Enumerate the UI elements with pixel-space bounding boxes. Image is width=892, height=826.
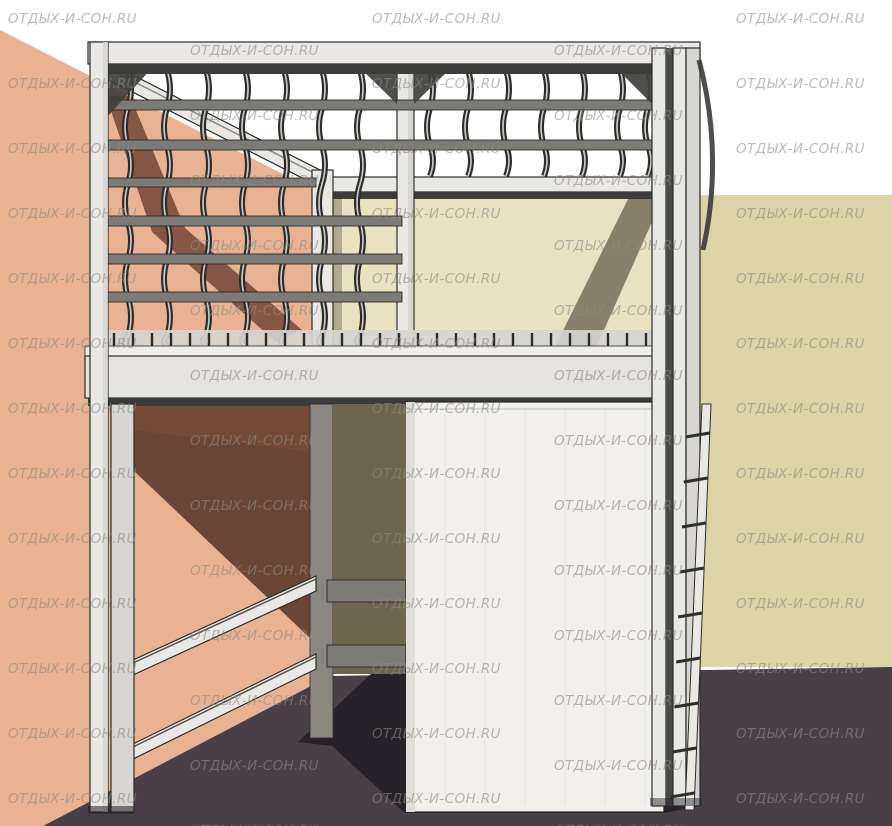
watermark-tile: ОТДЫХ-И-СОН.RU bbox=[372, 401, 501, 417]
watermark-tile: ОТДЫХ-И-СОН.RU bbox=[190, 368, 319, 384]
watermark-tile: ОТДЫХ-И-СОН.RU bbox=[736, 206, 865, 222]
watermark-tile: ОТДЫХ-И-СОН.RU bbox=[736, 76, 865, 92]
watermark-tile: ОТДЫХ-И-СОН.RU bbox=[372, 726, 501, 742]
watermark-tile: ОТДЫХ-И-СОН.RU bbox=[736, 336, 865, 352]
watermark-tile: ОТДЫХ-И-СОН.RU bbox=[190, 758, 319, 774]
watermark-tile: ОТДЫХ-И-СОН.RU bbox=[554, 43, 683, 59]
watermark-tile: ОТДЫХ-И-СОН.RU bbox=[190, 238, 319, 254]
watermark-tile: ОТДЫХ-И-СОН.RU bbox=[554, 238, 683, 254]
watermark-tile: ОТДЫХ-И-СОН.RU bbox=[372, 141, 501, 157]
watermark-tile: ОТДЫХ-И-СОН.RU bbox=[554, 563, 683, 579]
watermark-tile: ОТДЫХ-И-СОН.RU bbox=[190, 173, 319, 189]
watermark-tile: ОТДЫХ-И-СОН.RU bbox=[190, 43, 319, 59]
watermark-tile: ОТДЫХ-И-СОН.RU bbox=[736, 596, 865, 612]
render-canvas: ОТДЫХ-И-СОН.RUОТДЫХ-И-СОН.RUОТДЫХ-И-СОН.… bbox=[0, 0, 892, 826]
watermark-tile: ОТДЫХ-И-СОН.RU bbox=[8, 76, 137, 92]
watermark-tile: ОТДЫХ-И-СОН.RU bbox=[554, 693, 683, 709]
watermark-tile: ОТДЫХ-И-СОН.RU bbox=[736, 531, 865, 547]
watermark-tile: ОТДЫХ-И-СОН.RU bbox=[554, 758, 683, 774]
watermark-tile: ОТДЫХ-И-СОН.RU bbox=[554, 628, 683, 644]
watermark-tile: ОТДЫХ-И-СОН.RU bbox=[736, 726, 865, 742]
watermark-tile: ОТДЫХ-И-СОН.RU bbox=[8, 596, 137, 612]
watermark-tile: ОТДЫХ-И-СОН.RU bbox=[554, 173, 683, 189]
watermark-tile: ОТДЫХ-И-СОН.RU bbox=[190, 498, 319, 514]
watermark-tile: ОТДЫХ-И-СОН.RU bbox=[554, 368, 683, 384]
watermark-tile: ОТДЫХ-И-СОН.RU bbox=[372, 336, 501, 352]
watermark-tile: ОТДЫХ-И-СОН.RU bbox=[554, 433, 683, 449]
watermark-tile: ОТДЫХ-И-СОН.RU bbox=[190, 628, 319, 644]
product-render: ОТДЫХ-И-СОН.RU ОТДЫХ-И-СОН.RUОТДЫХ-И-СОН… bbox=[0, 0, 892, 826]
watermark-tile: ОТДЫХ-И-СОН.RU bbox=[8, 336, 137, 352]
watermark-tile: ОТДЫХ-И-СОН.RU bbox=[190, 563, 319, 579]
watermark-tile: ОТДЫХ-И-СОН.RU bbox=[736, 661, 865, 677]
watermark-tile: ОТДЫХ-И-СОН.RU bbox=[8, 11, 137, 27]
watermark-tile: ОТДЫХ-И-СОН.RU bbox=[190, 303, 319, 319]
watermark-tile: ОТДЫХ-И-СОН.RU bbox=[372, 661, 501, 677]
watermark-tile: ОТДЫХ-И-СОН.RU bbox=[372, 791, 501, 807]
watermark-tile: ОТДЫХ-И-СОН.RU bbox=[554, 108, 683, 124]
watermark-tile: ОТДЫХ-И-СОН.RU bbox=[8, 466, 137, 482]
watermark-tile: ОТДЫХ-И-СОН.RU bbox=[372, 531, 501, 547]
watermark-tile: ОТДЫХ-И-СОН.RU bbox=[736, 791, 865, 807]
watermark-tile: ОТДЫХ-И-СОН.RU bbox=[736, 466, 865, 482]
watermark-tile: ОТДЫХ-И-СОН.RU bbox=[372, 466, 501, 482]
watermark-tile: ОТДЫХ-И-СОН.RU bbox=[372, 596, 501, 612]
watermark-tile: ОТДЫХ-И-СОН.RU bbox=[190, 693, 319, 709]
watermark-tile: ОТДЫХ-И-СОН.RU bbox=[8, 401, 137, 417]
watermark-tile: ОТДЫХ-И-СОН.RU bbox=[736, 11, 865, 27]
watermark-tile: ОТДЫХ-И-СОН.RU bbox=[8, 661, 137, 677]
watermark-tile: ОТДЫХ-И-СОН.RU bbox=[554, 498, 683, 514]
watermark-tile: ОТДЫХ-И-СОН.RU bbox=[372, 271, 501, 287]
watermark-tile: ОТДЫХ-И-СОН.RU bbox=[8, 271, 137, 287]
watermark-tile: ОТДЫХ-И-СОН.RU bbox=[736, 271, 865, 287]
watermark-tile: ОТДЫХ-И-СОН.RU bbox=[190, 433, 319, 449]
watermark-tile: ОТДЫХ-И-СОН.RU bbox=[372, 206, 501, 222]
watermark-tile: ОТДЫХ-И-СОН.RU bbox=[8, 726, 137, 742]
watermark-tile: ОТДЫХ-И-СОН.RU bbox=[8, 791, 137, 807]
watermark-tile: ОТДЫХ-И-СОН.RU bbox=[8, 531, 137, 547]
watermark-tile: ОТДЫХ-И-СОН.RU bbox=[372, 76, 501, 92]
watermark-tile: ОТДЫХ-И-СОН.RU bbox=[554, 303, 683, 319]
watermark-tile: ОТДЫХ-И-СОН.RU bbox=[736, 141, 865, 157]
watermark-tile: ОТДЫХ-И-СОН.RU bbox=[736, 401, 865, 417]
watermark-tile: ОТДЫХ-И-СОН.RU bbox=[190, 108, 319, 124]
watermark-tile: ОТДЫХ-И-СОН.RU bbox=[8, 141, 137, 157]
watermark-tile: ОТДЫХ-И-СОН.RU bbox=[8, 206, 137, 222]
watermark-tile: ОТДЫХ-И-СОН.RU bbox=[372, 11, 501, 27]
